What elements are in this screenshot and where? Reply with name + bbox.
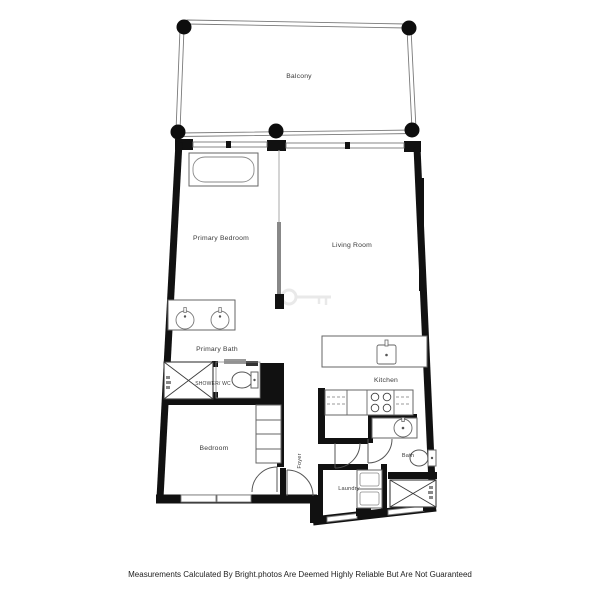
balcony-post-bottom-left [171,125,186,140]
balcony-post-top-right [402,21,417,36]
floor-plan-drawing: Balcony [0,0,600,600]
entry-closet-tag-1 [429,486,433,489]
top-window-left-mullion [226,141,231,148]
bath-bottom-wall [388,472,437,479]
watermark-key-icon [282,290,331,305]
entry-closet [390,480,436,507]
bedroom-window-right [217,495,251,502]
wc-toilet-bowl [232,372,252,388]
foyer-door-swing [287,470,313,496]
bath-toilet-button [431,457,433,459]
footer-disclaimer: Measurements Calculated By Bright.photos… [128,570,472,579]
living-room-label: Living Room [332,242,372,249]
primary-bath: Primary Bath [168,300,238,353]
watermark-key-bow [282,290,296,304]
vanity-drain-left [184,315,186,317]
wc-toilet-button [253,379,255,381]
entry-wall-chunk-middle [356,508,371,516]
kitchen-counter [325,390,413,415]
bath-sink-drain [402,427,405,430]
entry-closet-tag-3 [429,496,433,499]
laundry-label: Laundry [338,486,360,492]
entry-closet-tag-2 [428,491,433,494]
balcony-rail-left [176,29,184,131]
top-wall-middle-segment [267,140,286,151]
bedroom-living-partition-slider [277,222,281,296]
shower-wc: SHOWER/ WC [164,362,260,399]
laundry-left-wall [318,464,323,517]
balcony-post-top-left [177,20,192,35]
kitchen-label: Kitchen [374,377,398,384]
balcony-post-bottom-middle [269,124,284,139]
vanity-faucet-left [184,308,187,313]
shower-wc-label: SHOWER/ WC [195,381,231,387]
foyer-left-wall [280,468,286,499]
primary-bedroom-label: Primary Bedroom [193,235,249,242]
entry-left-wall [310,497,319,523]
floor-plan: Balcony [0,0,600,600]
right-wall-step [419,178,424,291]
top-window-right-mullion [345,142,350,149]
bedroom: Bedroom [200,405,281,492]
kitchen-corridor-wall [318,388,325,443]
balcony-rail-top [187,20,407,28]
shower-closet-tag-2 [166,381,171,384]
primary-bedroom: Primary Bedroom [189,153,258,242]
balcony-rail-right [407,29,416,129]
island-faucet [385,340,388,346]
vanity-sink-left [176,311,194,329]
bedroom-label: Bedroom [200,445,229,452]
island-sink-drain [385,354,388,357]
bathtub-inner [193,157,254,182]
kitchen-island [322,336,427,367]
vanity-drain-right [219,315,221,317]
bath-faucet [402,418,405,422]
vanity-sink-right [211,311,229,329]
shower-closet-tag-3 [166,386,170,389]
bedroom-living-partition-end [275,294,284,309]
bedroom-window-left [181,495,216,502]
bath-label: Bath [402,453,414,459]
kitchen: Kitchen [322,336,427,415]
balcony-post-bottom-right [405,123,420,138]
bedroom-door-swing [252,467,277,492]
shower-closet-tag-1 [166,376,170,379]
shower-shelf-light [224,359,246,364]
foyer-label: Foyer [297,453,303,468]
primary-bath-label: Primary Bath [196,346,238,353]
vanity-faucet-right [219,308,222,313]
bath: Bath [368,418,436,467]
laundry: Laundry [338,470,382,508]
balcony: Balcony [171,20,420,140]
shower-block-wall [260,363,284,399]
balcony-rail-bottom [179,130,414,137]
balcony-label: Balcony [286,73,312,80]
